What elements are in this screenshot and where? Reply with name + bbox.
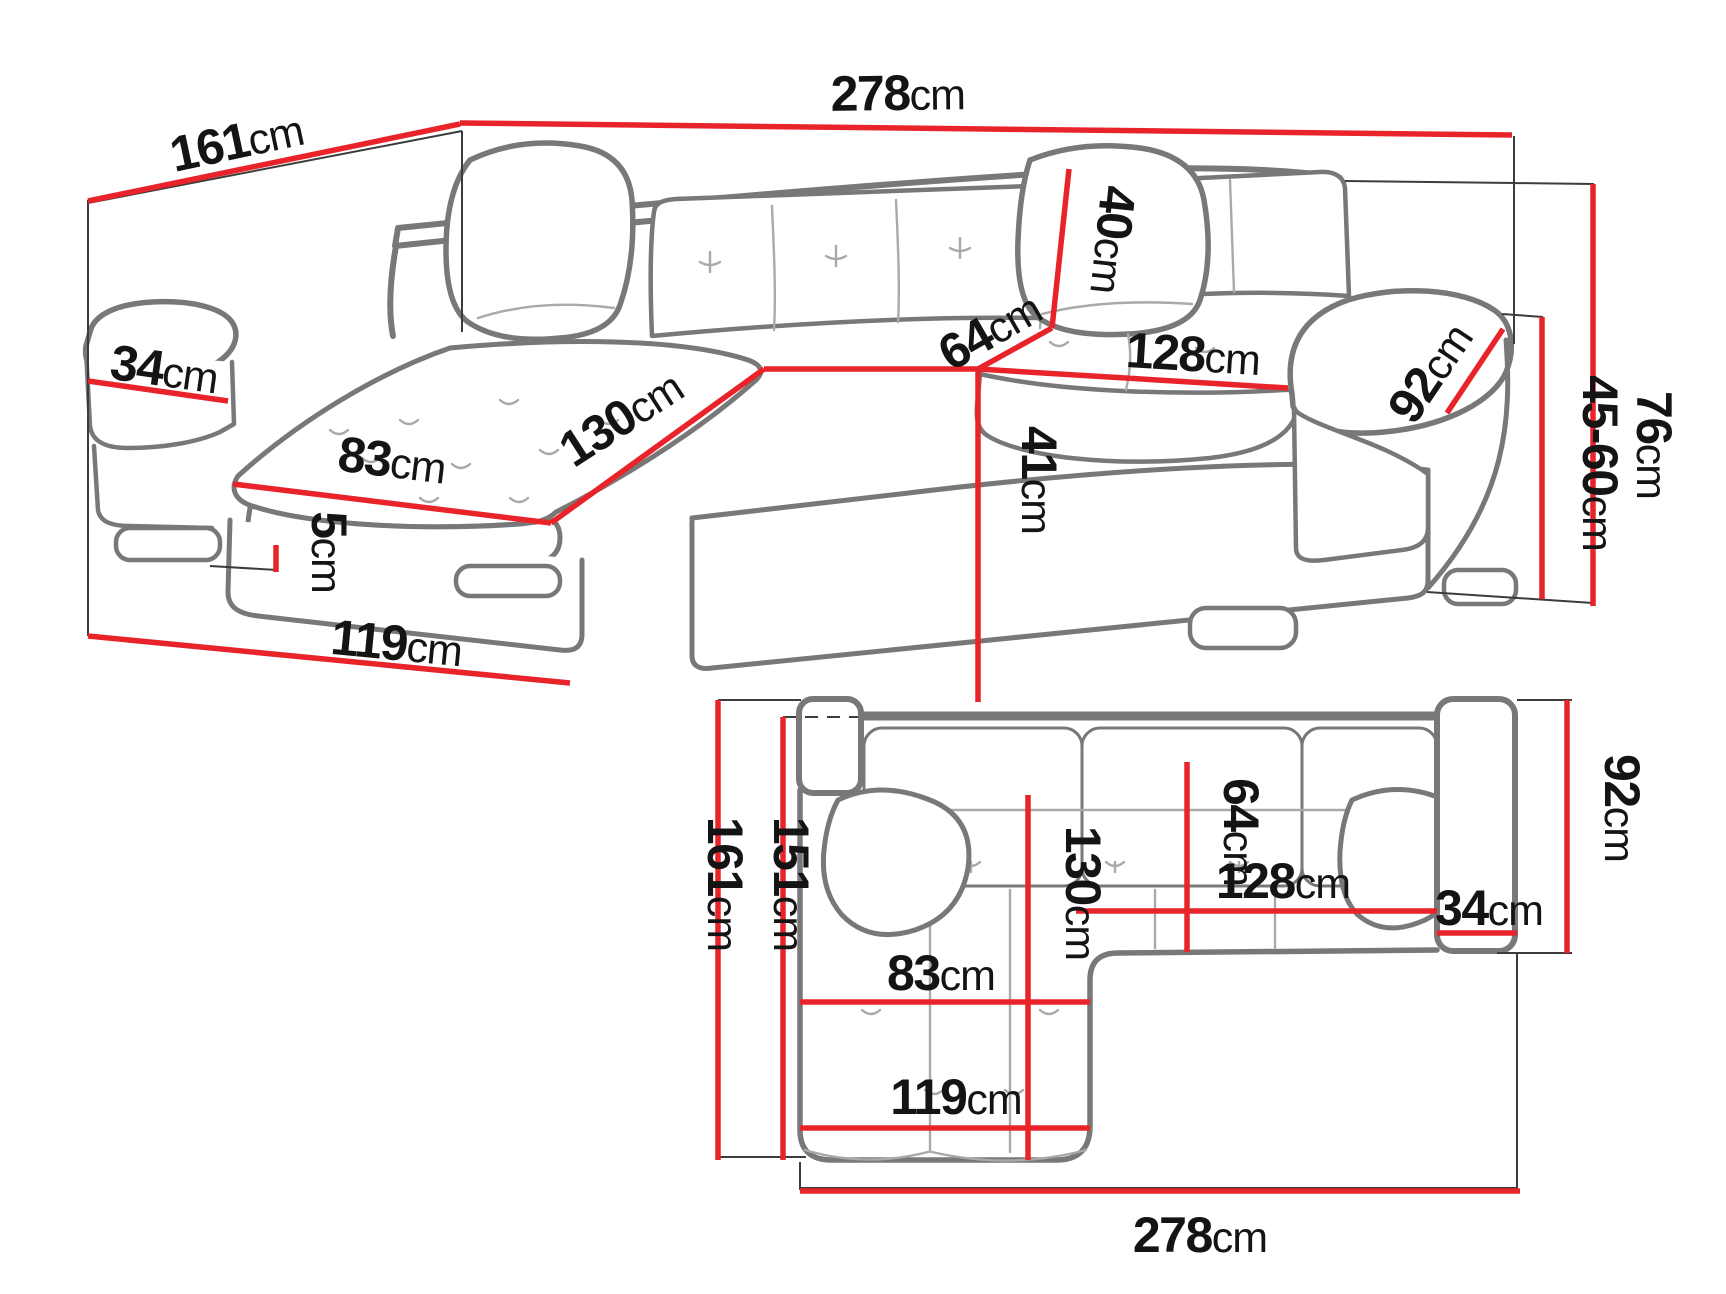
leg-far-right	[1444, 570, 1516, 604]
plan-chaise-corner-block	[799, 699, 861, 793]
diagram-canvas: 278cm 161cm 34cm 83cm 130cm 40cm 64cm 12…	[0, 0, 1726, 1294]
plan-label-chaise-seat-width: 83cm	[887, 945, 995, 1001]
dim-label-seat-width: 128cm	[1124, 322, 1261, 386]
dim-label-seat-height: 41cm	[1011, 426, 1067, 534]
leg-front-mid	[456, 566, 560, 596]
plan-view: 161cm 151cm 130cm 64cm 128cm 34cm 92cm 8…	[697, 699, 1650, 1263]
sofa-dimension-diagram: 278cm 161cm 34cm 83cm 130cm 40cm 64cm 12…	[0, 0, 1726, 1294]
plan-label-chaise-length: 130cm	[1055, 826, 1111, 960]
leg-front-left	[116, 528, 220, 560]
sofa-3d-drawing	[86, 143, 1516, 668]
left-pillow	[446, 143, 633, 339]
plan-label-width-total: 278cm	[1133, 1207, 1267, 1263]
perspective-view: 278cm 161cm 34cm 83cm 130cm 40cm 64cm 12…	[86, 64, 1682, 702]
left-armrest-base	[94, 446, 212, 528]
dim-label-headrest-range: 45-60cm	[1572, 375, 1628, 551]
plan-left-pillow	[823, 790, 969, 935]
plan-label-seat-width: 128cm	[1216, 853, 1350, 909]
plan-label-depth-total: 161cm	[697, 817, 753, 951]
armrest-height-guide	[1502, 314, 1543, 317]
plan-label-armrest-depth: 92cm	[1594, 754, 1650, 862]
dim-line-width-278	[460, 123, 1512, 135]
plan-label-chaise-width: 119cm	[890, 1069, 1022, 1125]
plan-label-armrest-width: 34cm	[1435, 880, 1543, 936]
dim-label-width-total: 278cm	[830, 64, 965, 122]
plan-label-depth-inner: 151cm	[763, 817, 819, 951]
dim-label-height-total: 76cm	[1626, 391, 1682, 499]
chaise-seat-top	[234, 342, 761, 527]
dim-label-leg-height: 5cm	[301, 511, 357, 593]
leg-front-right	[1190, 608, 1296, 648]
